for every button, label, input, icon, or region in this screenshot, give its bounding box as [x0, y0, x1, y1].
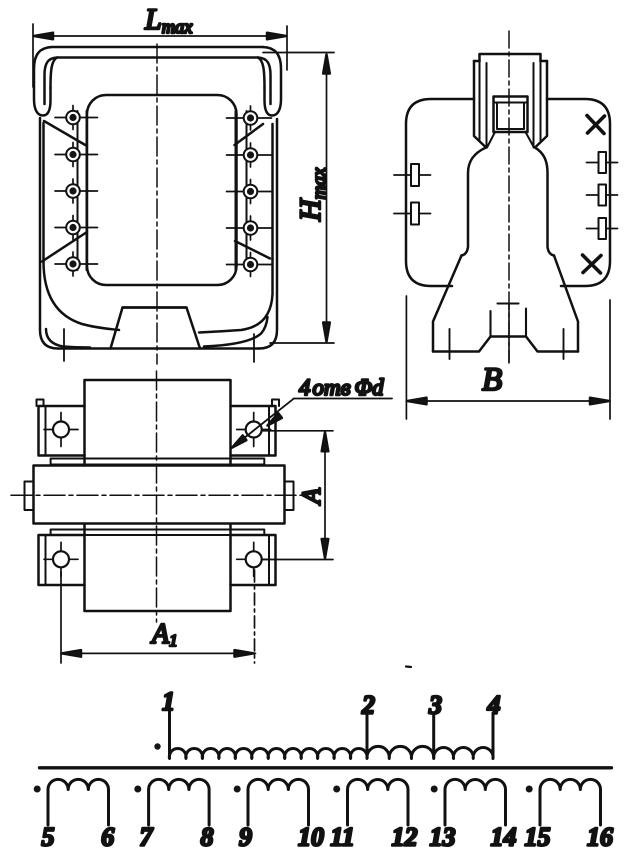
svg-text:A: A [297, 488, 326, 506]
svg-text:2: 2 [361, 691, 375, 720]
svg-text:8: 8 [201, 823, 214, 852]
svg-text:1: 1 [162, 687, 175, 716]
svg-text:6: 6 [101, 823, 114, 852]
svg-text:B: B [482, 362, 502, 398]
svg-text:14: 14 [491, 823, 517, 852]
svg-text:Lmax: Lmax [144, 3, 193, 38]
svg-text:4: 4 [487, 691, 501, 720]
svg-text:16: 16 [587, 823, 613, 852]
svg-text:5: 5 [42, 823, 55, 852]
svg-text:9: 9 [239, 823, 252, 852]
svg-text:10: 10 [298, 823, 324, 852]
svg-text:4отвΦd: 4отвΦd [299, 375, 384, 400]
svg-text:12: 12 [392, 823, 418, 852]
svg-text:13: 13 [430, 823, 456, 852]
svg-text:3: 3 [428, 691, 442, 720]
svg-text:15: 15 [525, 823, 551, 852]
svg-text:Hmax: Hmax [294, 167, 330, 222]
svg-text:7: 7 [140, 823, 154, 852]
svg-text:11: 11 [330, 823, 355, 852]
svg-text:A1: A1 [150, 619, 178, 650]
